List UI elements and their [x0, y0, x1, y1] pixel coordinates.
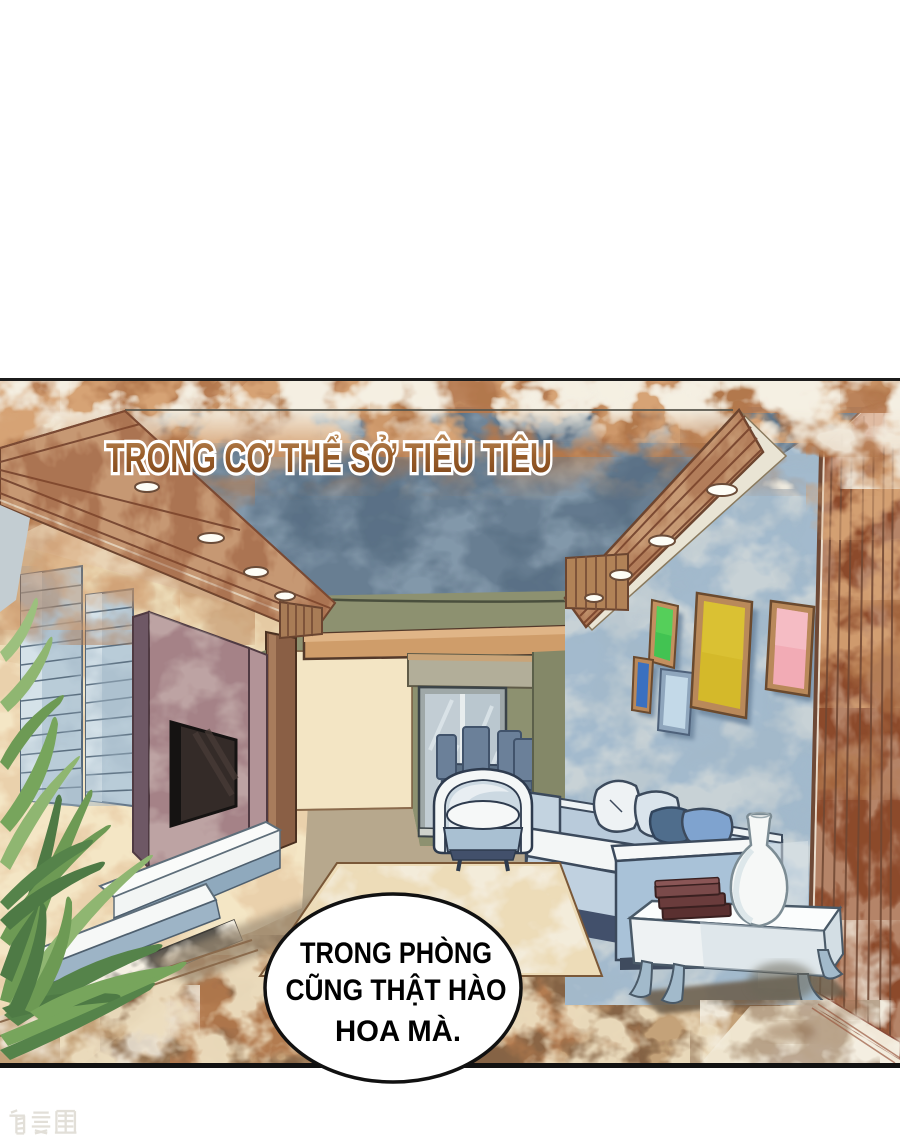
svg-text:TRONG PHÒNG: TRONG PHÒNG [300, 936, 492, 970]
svg-text:CŨNG THẬT HÀO: CŨNG THẬT HÀO [286, 973, 507, 1007]
svg-text:HOA MÀ.: HOA MÀ. [335, 1014, 461, 1048]
svg-text:TRONG CƠ THỂ SỞ TIÊU TIÊU: TRONG CƠ THỂ SỞ TIÊU TIÊU [106, 433, 552, 481]
